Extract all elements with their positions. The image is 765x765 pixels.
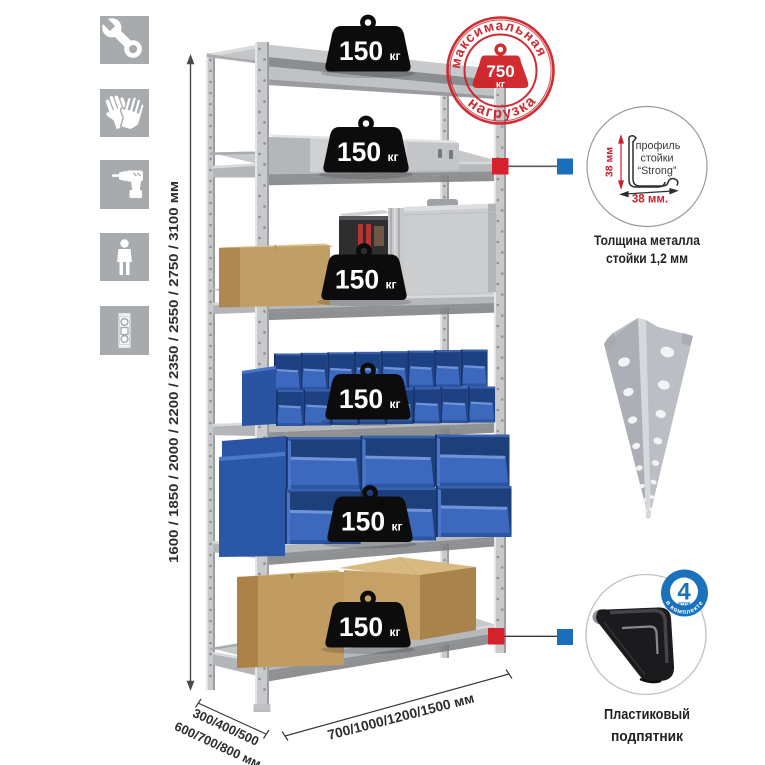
svg-text:750: 750 <box>486 62 514 81</box>
svg-text:стойки 1,2 мм: стойки 1,2 мм <box>606 251 688 267</box>
svg-text:кг: кг <box>387 150 398 164</box>
svg-text:кг: кг <box>389 397 400 411</box>
svg-text:стойки: стойки <box>640 153 673 165</box>
svg-text:кг: кг <box>496 80 505 91</box>
svg-text:150: 150 <box>339 36 383 66</box>
svg-text:38 мм.: 38 мм. <box>632 194 668 206</box>
svg-text:150: 150 <box>339 612 383 642</box>
svg-text:кг: кг <box>389 625 400 639</box>
svg-text:150: 150 <box>337 137 381 167</box>
svg-text:штуки: штуки <box>678 601 691 606</box>
svg-text:профиль: профиль <box>636 140 681 152</box>
svg-text:Толщина металла: Толщина металла <box>594 233 700 249</box>
svg-text:“Strong”: “Strong” <box>637 165 676 177</box>
svg-text:38 мм: 38 мм <box>604 147 616 177</box>
svg-text:150: 150 <box>339 384 383 414</box>
svg-text:подпятник: подпятник <box>611 729 684 745</box>
svg-text:кг: кг <box>385 278 396 292</box>
svg-text:кг: кг <box>389 49 400 63</box>
svg-text:150: 150 <box>341 507 385 537</box>
svg-text:кг: кг <box>391 520 402 534</box>
svg-text:150: 150 <box>335 265 379 295</box>
svg-text:1600 / 1850 / 2000 / 2200 / 23: 1600 / 1850 / 2000 / 2200 / 2350 / 2550 … <box>166 181 181 563</box>
svg-text:Пластиковый: Пластиковый <box>604 707 690 723</box>
